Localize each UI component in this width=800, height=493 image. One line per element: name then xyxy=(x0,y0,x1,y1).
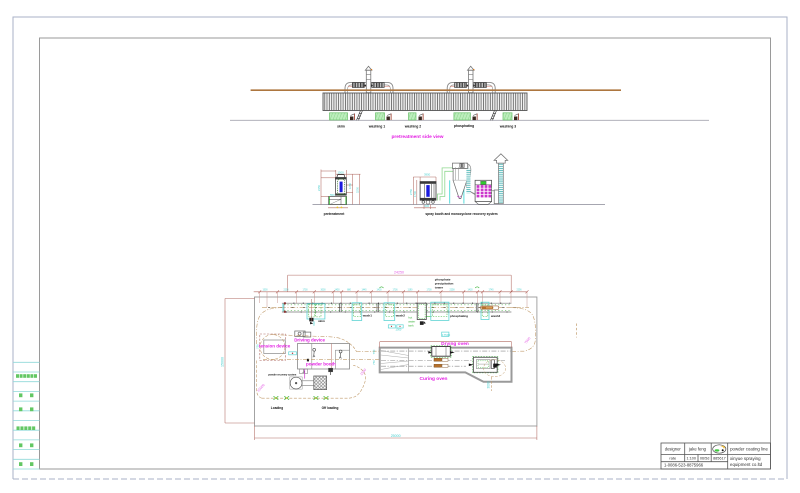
svg-text:885617: 885617 xyxy=(713,457,726,461)
svg-text:xinyue spraying: xinyue spraying xyxy=(730,456,761,461)
svg-text:wash2: wash2 xyxy=(395,313,406,317)
svg-text:skim: skim xyxy=(318,319,325,323)
svg-text:rate: rate xyxy=(669,456,677,461)
svg-text:3950: 3950 xyxy=(424,173,431,177)
svg-text:750: 750 xyxy=(372,360,376,365)
svg-text:phosphating: phosphating xyxy=(454,124,474,128)
svg-text:2350: 2350 xyxy=(317,184,321,191)
svg-text:tower: tower xyxy=(435,286,444,290)
svg-text:1-0086-523-8875966: 1-0086-523-8875966 xyxy=(664,463,704,468)
svg-text:3000: 3000 xyxy=(320,290,326,292)
svg-text:Driving device: Driving device xyxy=(294,337,325,342)
svg-text:1745: 1745 xyxy=(488,290,494,292)
svg-text:1736: 1736 xyxy=(392,290,398,292)
svg-text:1:100: 1:100 xyxy=(687,457,697,461)
svg-text:phosphating: phosphating xyxy=(450,314,468,318)
svg-text:wash3: wash3 xyxy=(490,314,501,318)
svg-text:1500: 1500 xyxy=(338,170,345,174)
svg-text:3000: 3000 xyxy=(487,381,491,388)
svg-text:powder recovery system: powder recovery system xyxy=(268,373,296,376)
svg-text:1445: 1445 xyxy=(361,290,367,292)
svg-text:skim: skim xyxy=(337,124,345,128)
svg-text:1190: 1190 xyxy=(408,290,414,292)
svg-text:25000: 25000 xyxy=(391,434,401,438)
svg-text:600: 600 xyxy=(312,321,316,326)
svg-text:spray booth and monocyclone re: spray booth and monocyclone recovery sys… xyxy=(425,212,497,216)
svg-text:1430: 1430 xyxy=(467,290,473,292)
svg-text:2000: 2000 xyxy=(396,327,402,331)
svg-text:designer: designer xyxy=(665,447,682,452)
svg-text:1700: 1700 xyxy=(302,290,308,292)
svg-text:2258: 2258 xyxy=(449,290,455,292)
svg-text:06/5d: 06/5d xyxy=(700,457,710,461)
svg-text:3250: 3250 xyxy=(355,186,359,193)
svg-text:1700: 1700 xyxy=(413,190,417,197)
svg-text:washing 2: washing 2 xyxy=(404,124,422,128)
svg-text:15000: 15000 xyxy=(221,357,225,367)
svg-text:tension device: tension device xyxy=(259,344,291,349)
svg-text:2256: 2256 xyxy=(516,290,522,292)
svg-text:1430: 1430 xyxy=(376,290,382,292)
svg-text:2250: 2250 xyxy=(283,290,289,292)
svg-text:washing 3: washing 3 xyxy=(499,124,517,128)
svg-text:1450: 1450 xyxy=(334,290,340,292)
svg-text:pretreatment side view: pretreatment side view xyxy=(392,134,444,140)
svg-text:1700: 1700 xyxy=(426,290,432,292)
svg-text:washing 1: washing 1 xyxy=(368,124,386,128)
svg-text:Loading: Loading xyxy=(271,406,283,410)
svg-text:750: 750 xyxy=(372,349,376,354)
svg-text:wash1: wash1 xyxy=(362,313,373,317)
svg-text:jake feng: jake feng xyxy=(688,447,707,452)
svg-text:powder booth: powder booth xyxy=(306,361,336,366)
svg-text:1250: 1250 xyxy=(348,182,352,189)
svg-text:24250: 24250 xyxy=(394,271,404,275)
svg-text:pretreatment: pretreatment xyxy=(324,212,346,216)
svg-text:equipment co.ltd: equipment co.ltd xyxy=(730,462,763,467)
svg-text:600: 600 xyxy=(425,204,430,208)
svg-text:tank: tank xyxy=(408,323,414,327)
svg-text:Drying oven: Drying oven xyxy=(441,341,469,347)
svg-text:Curing oven: Curing oven xyxy=(420,376,448,382)
svg-text:Off loading: Off loading xyxy=(322,406,339,410)
svg-text:1500: 1500 xyxy=(262,290,268,292)
svg-text:17500: 17500 xyxy=(442,333,451,337)
svg-text:powder coating line: powder coating line xyxy=(730,447,768,452)
